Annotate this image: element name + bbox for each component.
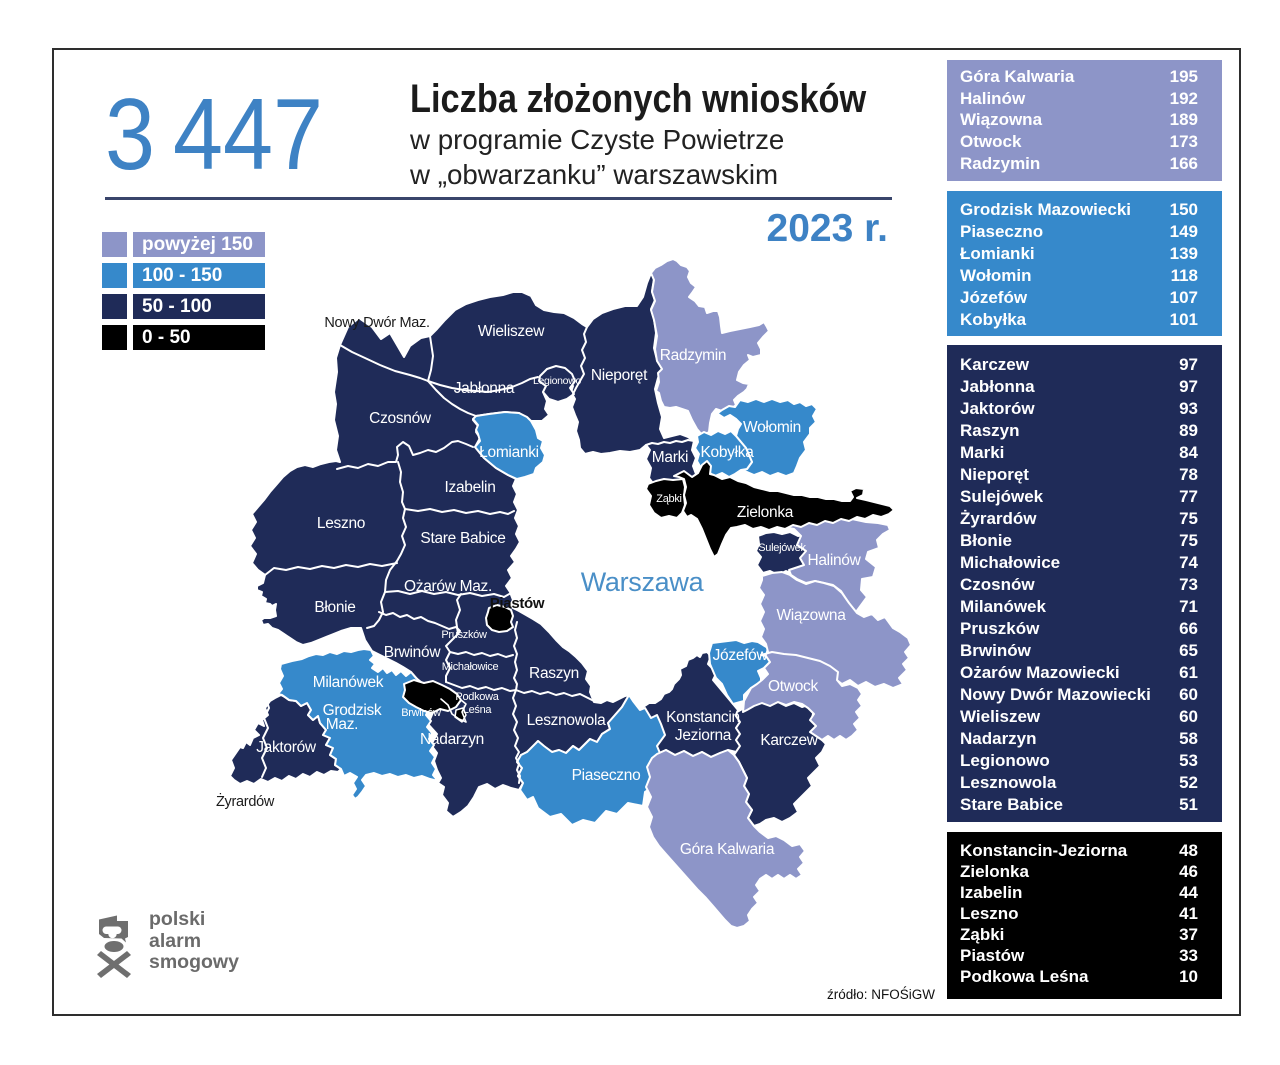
svg-text:Wołomin: Wołomin	[743, 419, 801, 436]
svg-text:Michałowice: Michałowice	[442, 661, 499, 673]
svg-text:Lesznowola: Lesznowola	[527, 712, 607, 729]
svg-text:Kobyłka: Kobyłka	[700, 444, 754, 461]
svg-text:Halinów: Halinów	[807, 552, 861, 569]
svg-text:Karczew: Karczew	[760, 732, 818, 749]
svg-text:Nieporęt: Nieporęt	[591, 367, 648, 384]
svg-text:Zielonka: Zielonka	[737, 504, 794, 521]
svg-text:Brwinów: Brwinów	[384, 644, 442, 661]
svg-text:Żyrardów: Żyrardów	[216, 792, 275, 810]
svg-text:Łomianki: Łomianki	[479, 444, 539, 461]
svg-text:Brwinów: Brwinów	[401, 707, 441, 719]
svg-text:Raszyn: Raszyn	[529, 665, 579, 682]
svg-text:Czosnów: Czosnów	[369, 410, 432, 427]
svg-text:Nadarzyn: Nadarzyn	[420, 731, 484, 748]
svg-text:Ząbki: Ząbki	[656, 493, 681, 505]
svg-text:Góra Kalwaria: Góra Kalwaria	[680, 841, 775, 858]
svg-text:Wieliszew: Wieliszew	[478, 323, 545, 340]
svg-text:Maz.: Maz.	[326, 716, 358, 733]
svg-text:Jeziorna: Jeziorna	[675, 727, 732, 744]
svg-text:Sulejówek: Sulejówek	[758, 542, 806, 554]
svg-text:Leszno: Leszno	[317, 515, 365, 532]
svg-text:Jaktorów: Jaktorów	[256, 739, 317, 756]
svg-text:Marki: Marki	[652, 449, 688, 466]
svg-text:Józefów: Józefów	[713, 647, 769, 664]
svg-text:Pruszków: Pruszków	[441, 629, 487, 641]
svg-text:Otwock: Otwock	[768, 678, 818, 695]
svg-text:Milanówek: Milanówek	[313, 674, 384, 691]
svg-text:Jabłonna: Jabłonna	[454, 380, 515, 397]
svg-text:Ożarów Maz.: Ożarów Maz.	[404, 578, 492, 595]
svg-text:Nowy Dwór Maz.: Nowy Dwór Maz.	[324, 315, 429, 331]
svg-text:Wiązowna: Wiązowna	[776, 607, 846, 624]
svg-text:Legionowo: Legionowo	[533, 375, 582, 387]
svg-text:Konstancin: Konstancin	[666, 709, 740, 726]
svg-text:Leśna: Leśna	[463, 704, 493, 716]
svg-text:Izabelin: Izabelin	[444, 479, 495, 496]
svg-text:Stare Babice: Stare Babice	[420, 530, 505, 547]
svg-text:Piaseczno: Piaseczno	[572, 767, 641, 784]
svg-text:Warszawa: Warszawa	[581, 567, 705, 597]
svg-text:Podkowa: Podkowa	[455, 691, 499, 703]
svg-text:Piastów: Piastów	[490, 595, 545, 612]
svg-text:Błonie: Błonie	[314, 599, 355, 616]
svg-text:Radzymin: Radzymin	[660, 347, 727, 364]
